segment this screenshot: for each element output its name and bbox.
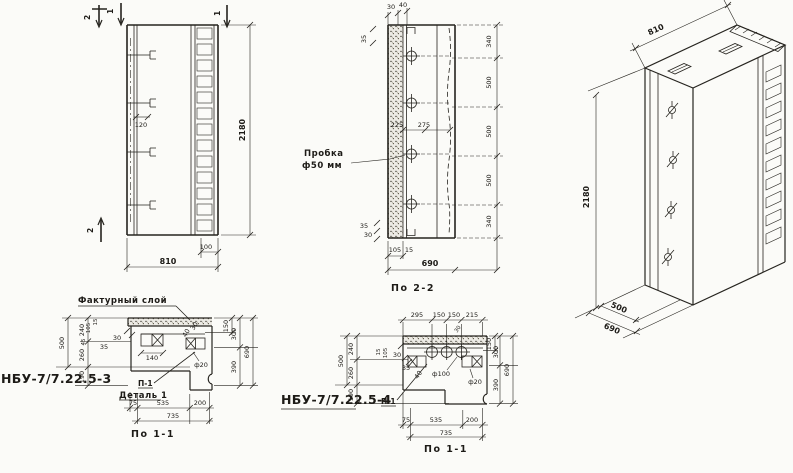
detail-section-nbu-3: Фактурный слой 30 15 105 45 35 140 40 30… xyxy=(1,296,258,440)
dim-height: 2180 xyxy=(238,118,247,141)
dim-l35: 35 xyxy=(360,35,368,43)
d3-30: 30 xyxy=(113,334,121,342)
dim-rib: 120 xyxy=(135,121,147,129)
d3-105: 105 xyxy=(86,322,92,333)
d4-chain-300: 300 xyxy=(492,346,500,358)
chain-340-top: 340 xyxy=(485,35,493,47)
detail3-slots xyxy=(141,334,205,349)
d4-bottom-535: 535 xyxy=(430,416,442,424)
section-mark-1-right: 1 xyxy=(213,11,222,16)
dim-275: 275 xyxy=(418,121,430,129)
section-mark-2-top: 2 xyxy=(83,15,92,20)
detail4-holes xyxy=(424,344,470,360)
isometric-view: 810 2180 500 690 xyxy=(575,0,785,338)
d3-chain-690: 690 xyxy=(243,346,251,358)
d4-105: 105 xyxy=(383,347,389,358)
d3-35: 35 xyxy=(100,343,108,351)
iso-plug-marks xyxy=(662,101,679,266)
iso-texture-strip xyxy=(766,65,781,244)
iso-dim-height: 2180 xyxy=(582,185,591,208)
d4-hole-big: ф100 xyxy=(432,370,450,378)
d3-chain-500: 500 xyxy=(58,337,66,349)
dim-t30: 30 xyxy=(387,3,395,11)
d4-chain-260: 260 xyxy=(347,367,355,379)
d4-bottom-735: 735 xyxy=(440,429,452,437)
d4-bottom-75: 75 xyxy=(402,416,410,424)
d3-detail-label: Деталь 1 xyxy=(119,391,167,401)
d4-chain-690: 690 xyxy=(503,364,511,376)
drawing-canvas: 120 2180 100 810 2 1 1 2 xyxy=(0,0,793,473)
d3-bottom-200: 200 xyxy=(194,399,206,407)
drawing-sheet: 120 2180 100 810 2 1 1 2 xyxy=(0,0,793,473)
d4-top-150a: 150 xyxy=(433,311,445,319)
d3-chain-390: 390 xyxy=(230,361,238,373)
d3-hole: ф20 xyxy=(194,361,208,369)
d4-top-295: 295 xyxy=(411,311,423,319)
d3-code: НБУ-7/7.22.5-3 xyxy=(1,371,111,386)
iso-dim-width: 810 xyxy=(646,22,665,37)
d3-140: 140 xyxy=(146,354,158,362)
iso-dim-690: 690 xyxy=(603,321,622,336)
dim-225: 225 xyxy=(391,121,403,129)
section-mark-2-bottom: 2 xyxy=(86,228,95,233)
dim-width: 810 xyxy=(160,257,177,266)
d3-bottom-735: 735 xyxy=(167,412,179,420)
section-mark-1-top: 1 xyxy=(106,9,115,14)
dim-bl30: 30 xyxy=(364,231,372,239)
chain-340-bottom: 340 xyxy=(485,215,493,227)
chain-500-b: 500 xyxy=(485,125,493,137)
chain-500-c: 500 xyxy=(485,174,493,186)
caption-section-2-2: По 2-2 xyxy=(391,283,435,294)
facing-layer-band xyxy=(388,25,403,238)
d4-top-150b: 150 xyxy=(448,311,460,319)
section-2-2-view: 225 275 Пробка ф50 мм 340 500 500 500 34… xyxy=(302,1,503,294)
d4-caption: По 1-1 xyxy=(424,444,468,455)
detail4-slots xyxy=(408,356,482,367)
d4-chain-390: 390 xyxy=(492,379,500,391)
d4-top-215: 215 xyxy=(466,311,478,319)
d4-35: 35 xyxy=(402,364,410,372)
dim-b15: 15 xyxy=(405,246,413,254)
d4-bottom-200: 200 xyxy=(466,416,478,424)
d4-code: НБУ-7/7.22.5-4 xyxy=(281,392,391,407)
d4-chain-240: 240 xyxy=(347,343,355,355)
d4-chain-500: 500 xyxy=(337,355,345,367)
chain-500-a: 500 xyxy=(485,76,493,88)
dim-690: 690 xyxy=(422,259,439,268)
dim-t40: 40 xyxy=(399,1,407,9)
plug-label-line2: ф50 мм xyxy=(302,161,342,171)
dim-bl35: 35 xyxy=(360,222,368,230)
texture-strip xyxy=(197,28,212,231)
d3-chain-260: 260 xyxy=(78,349,86,361)
elevation-view: 120 2180 100 810 2 1 1 2 xyxy=(83,3,256,272)
hook-marks xyxy=(127,51,156,209)
d3-marker-p1: П-1 xyxy=(138,379,153,388)
dim-b105: 105 xyxy=(389,246,401,254)
iso-dim-500: 500 xyxy=(610,300,629,315)
surface-layer-label: Фактурный слой xyxy=(78,296,167,306)
d4-hole: ф20 xyxy=(468,378,482,386)
d3-chain-300: 300 xyxy=(230,328,238,340)
dim-strip: 100 xyxy=(200,243,212,251)
d3-15: 15 xyxy=(93,318,99,325)
d3-caption: По 1-1 xyxy=(131,429,175,440)
detail-section-nbu-4: ф100 ф20 40 15 105 30 35 295 150 150 215… xyxy=(281,311,518,455)
d3-chain-240: 240 xyxy=(78,324,86,336)
d4-15: 15 xyxy=(376,348,382,355)
plug-label-line1: Пробка xyxy=(304,148,343,159)
d3-chain-150: 150 xyxy=(222,320,230,332)
d4-30: 30 xyxy=(393,351,401,359)
